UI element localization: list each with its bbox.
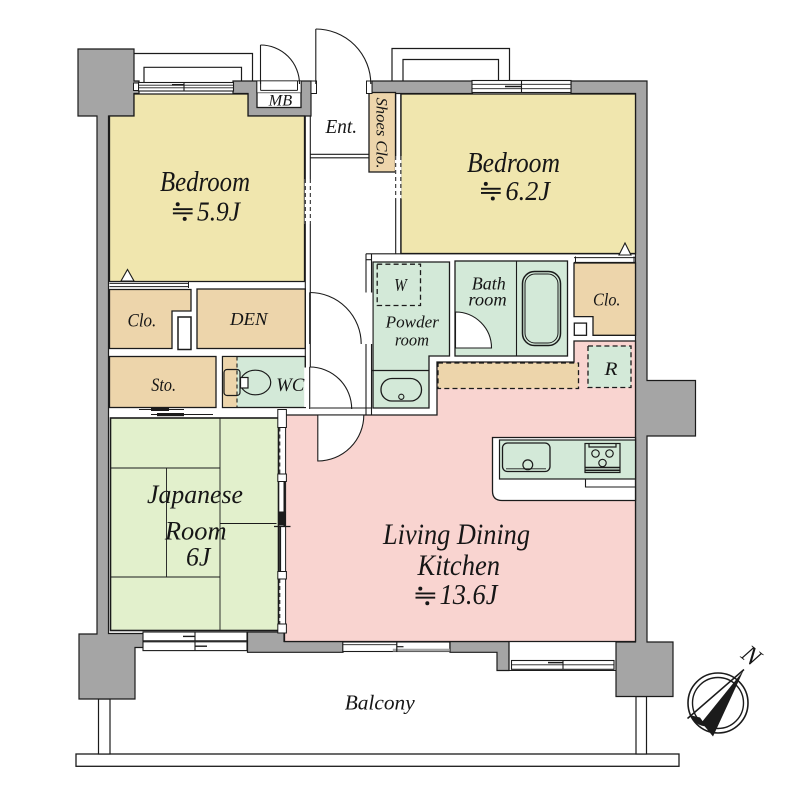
svg-text:Living Dining: Living Dining xyxy=(382,519,530,551)
svg-text:Room: Room xyxy=(164,517,227,546)
svg-text:DEN: DEN xyxy=(229,309,269,329)
svg-text:MB: MB xyxy=(268,93,293,110)
svg-text:Ent.: Ent. xyxy=(325,116,357,138)
svg-text:W: W xyxy=(394,275,408,295)
svg-text:6J: 6J xyxy=(186,543,212,572)
svg-text:Clo.: Clo. xyxy=(128,310,157,331)
svg-text:Balcony: Balcony xyxy=(345,691,415,715)
svg-text:Sto.: Sto. xyxy=(151,375,176,396)
svg-text:Clo.: Clo. xyxy=(593,290,621,310)
svg-text:Kitchen: Kitchen xyxy=(417,550,500,582)
svg-text:6.2J: 6.2J xyxy=(506,176,552,206)
svg-text:R: R xyxy=(603,359,618,380)
svg-text:room: room xyxy=(395,331,429,350)
svg-text:room: room xyxy=(468,289,506,309)
svg-text:WC: WC xyxy=(276,375,304,396)
svg-text:Bedroom: Bedroom xyxy=(160,166,250,198)
svg-text:5.9J: 5.9J xyxy=(197,197,242,227)
svg-text:13.6J: 13.6J xyxy=(440,580,499,611)
svg-text:Powder: Powder xyxy=(385,313,440,332)
svg-text:Japanese: Japanese xyxy=(147,480,243,509)
svg-text:Shoes Clo.: Shoes Clo. xyxy=(373,98,390,169)
svg-text:Bedroom: Bedroom xyxy=(467,147,560,179)
